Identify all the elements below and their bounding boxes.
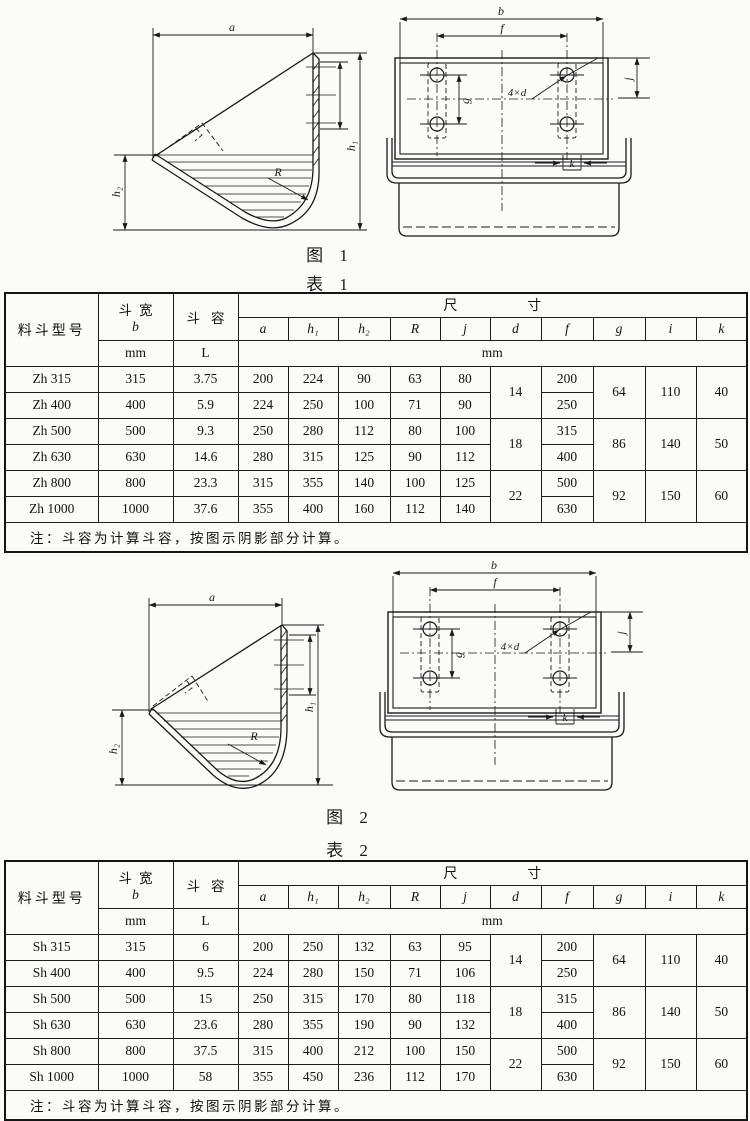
table-cell: 64 xyxy=(593,366,645,418)
header-dimensions: 尺寸 xyxy=(238,861,747,885)
table-cell: 250 xyxy=(541,960,593,986)
table-cell: 5.9 xyxy=(173,392,238,418)
table-cell: 224 xyxy=(238,960,288,986)
dim-label-h2: h₂ xyxy=(108,744,120,754)
table-cell: 500 xyxy=(98,986,173,1012)
dim-label-b: b xyxy=(498,6,504,18)
table-cell: 60 xyxy=(696,1038,747,1090)
dim-label-R: R xyxy=(249,729,258,743)
table-row: Zh 800 800 23.3 315 355 140 100 125 22 5… xyxy=(5,470,747,496)
model-cell: Zh 800 xyxy=(5,470,98,496)
dim-label-a: a xyxy=(229,20,235,34)
table-cell: 132 xyxy=(440,1012,490,1038)
dim-col-header: j xyxy=(440,885,490,908)
table-cell: 86 xyxy=(593,986,645,1038)
dimension-lines xyxy=(113,28,367,230)
dimension-lines xyxy=(112,598,333,785)
header-width-symbol: b xyxy=(99,887,173,903)
dim-col-header: k xyxy=(696,885,747,908)
table-cell: 90 xyxy=(390,1012,440,1038)
dim-label-h1: h₁ xyxy=(302,702,316,712)
table-cell: 80 xyxy=(440,366,490,392)
table-cell: 50 xyxy=(696,418,747,470)
table-cell: 112 xyxy=(440,444,490,470)
table-cell: 280 xyxy=(238,444,288,470)
table-cell: 112 xyxy=(390,496,440,522)
table-cell: 355 xyxy=(288,470,338,496)
table-cell: 100 xyxy=(440,418,490,444)
table-cell: 64 xyxy=(593,934,645,986)
table-cell: 630 xyxy=(541,496,593,522)
shading-lines xyxy=(156,713,281,776)
table-cell: 140 xyxy=(645,418,696,470)
table-cell: 80 xyxy=(390,986,440,1012)
table-cell: 170 xyxy=(440,1064,490,1090)
dim-col-header: f xyxy=(541,317,593,340)
table-cell: 22 xyxy=(490,470,541,522)
header-width: 斗宽 b xyxy=(98,293,173,340)
table-cell: 14.6 xyxy=(173,444,238,470)
table-cell: 200 xyxy=(238,366,288,392)
figure1-caption: 图 1 xyxy=(0,241,660,266)
table-cell: 800 xyxy=(98,1038,173,1064)
dim-col-header: i xyxy=(645,885,696,908)
document-page: { "figure1": { "caption_fig": "图 1", "ca… xyxy=(0,0,750,1121)
table-cell: 37.5 xyxy=(173,1038,238,1064)
figure2-rear-view-drawing: b f g j k 4×d xyxy=(378,560,726,800)
table-cell: 500 xyxy=(541,470,593,496)
table-cell: 280 xyxy=(288,960,338,986)
table-cell: 9.3 xyxy=(173,418,238,444)
table-cell: 280 xyxy=(238,1012,288,1038)
dim-label-R: R xyxy=(273,165,282,179)
shading-lines xyxy=(156,155,313,217)
table-cell: 90 xyxy=(390,444,440,470)
table-cell: 200 xyxy=(541,366,593,392)
table-cell: 110 xyxy=(645,934,696,986)
table-cell: 95 xyxy=(440,934,490,960)
header-width-symbol: b xyxy=(99,319,173,335)
holes-count-label: 4×d xyxy=(508,87,527,99)
dim-col-header: d xyxy=(490,317,541,340)
table-cell: 100 xyxy=(390,1038,440,1064)
table-cell: 9.5 xyxy=(173,960,238,986)
table-cell: 132 xyxy=(338,934,390,960)
table-row: Zh 500 500 9.3 250 280 112 80 100 18 315… xyxy=(5,418,747,444)
dim-col-header: j xyxy=(440,317,490,340)
table-cell: 160 xyxy=(338,496,390,522)
table-cell: 224 xyxy=(288,366,338,392)
table-cell: 18 xyxy=(490,418,541,470)
table-row: Sh 500 500 15 250 315 170 80 118 18 315 … xyxy=(5,986,747,1012)
model-cell: Sh 800 xyxy=(5,1038,98,1064)
table-cell: 58 xyxy=(173,1064,238,1090)
table-cell: 224 xyxy=(238,392,288,418)
table-cell: 200 xyxy=(238,934,288,960)
table-cell: 450 xyxy=(288,1064,338,1090)
dim-col-header: h₁ xyxy=(288,885,338,908)
wall-hatching xyxy=(274,630,304,722)
table-cell: 14 xyxy=(490,366,541,418)
dim-col-header: g xyxy=(593,317,645,340)
model-cell: Sh 315 xyxy=(5,934,98,960)
table-cell: 315 xyxy=(98,366,173,392)
table-cell: 150 xyxy=(338,960,390,986)
model-cell: Zh 1000 xyxy=(5,496,98,522)
table-cell: 280 xyxy=(288,418,338,444)
model-cell: Zh 500 xyxy=(5,418,98,444)
dim-label-a: a xyxy=(209,590,215,604)
table-cell: 40 xyxy=(696,934,747,986)
table-cell: 500 xyxy=(541,1038,593,1064)
table-cell: 250 xyxy=(541,392,593,418)
table-cell: 100 xyxy=(390,470,440,496)
table-cell: 71 xyxy=(390,392,440,418)
table-cell: 236 xyxy=(338,1064,390,1090)
table1: 料斗型号 斗宽 b 斗容 尺寸 a h₁ h₂ R j d f g i k mm… xyxy=(4,292,748,553)
dim-col-header: k xyxy=(696,317,747,340)
model-cell: Sh 630 xyxy=(5,1012,98,1038)
table-cell: 315 xyxy=(98,934,173,960)
bucket-outline xyxy=(149,625,287,788)
unit-cell: mm xyxy=(98,908,173,934)
table-cell: 400 xyxy=(98,960,173,986)
table-cell: 23.6 xyxy=(173,1012,238,1038)
table-cell: 6 xyxy=(173,934,238,960)
dim-label-b: b xyxy=(491,560,497,572)
table-cell: 90 xyxy=(440,392,490,418)
table-cell: 90 xyxy=(338,366,390,392)
unit-cell: L xyxy=(173,908,238,934)
holes-count-label: 4×d xyxy=(501,641,520,653)
table-cell: 140 xyxy=(440,496,490,522)
dim-col-header: f xyxy=(541,885,593,908)
table-cell: 92 xyxy=(593,470,645,522)
table-cell: 150 xyxy=(645,1038,696,1090)
dim-label-h1: h₁ xyxy=(344,141,358,151)
table-cell: 1000 xyxy=(98,1064,173,1090)
model-cell: Sh 400 xyxy=(5,960,98,986)
model-cell: Sh 1000 xyxy=(5,1064,98,1090)
table-cell: 71 xyxy=(390,960,440,986)
table-cell: 112 xyxy=(338,418,390,444)
dim-label-g: g xyxy=(458,98,472,104)
table-cell: 14 xyxy=(490,934,541,986)
table-cell: 190 xyxy=(338,1012,390,1038)
dashed-construction xyxy=(156,123,223,156)
table-cell: 630 xyxy=(98,1012,173,1038)
table-cell: 800 xyxy=(98,470,173,496)
dim-col-header: h₁ xyxy=(288,317,338,340)
table-cell: 100 xyxy=(338,392,390,418)
table-cell: 150 xyxy=(440,1038,490,1064)
header-capacity: 斗容 xyxy=(173,861,238,908)
table-cell: 106 xyxy=(440,960,490,986)
table-cell: 140 xyxy=(645,986,696,1038)
model-cell: Sh 500 xyxy=(5,986,98,1012)
table-cell: 355 xyxy=(288,1012,338,1038)
dim-label-k: k xyxy=(570,158,576,170)
wall-hatching xyxy=(306,62,336,166)
figure2: a h₁ h₂ R xyxy=(0,560,750,802)
figure2-side-view-drawing: a h₁ h₂ R xyxy=(108,572,378,796)
dim-label-g: g xyxy=(451,652,465,658)
table-cell: 80 xyxy=(390,418,440,444)
table-cell: 250 xyxy=(238,986,288,1012)
dim-col-header: h₂ xyxy=(338,317,390,340)
table-cell: 112 xyxy=(390,1064,440,1090)
table-row: Sh 800 800 37.5 315 400 212 100 150 22 5… xyxy=(5,1038,747,1064)
dim-label-h2: h₂ xyxy=(110,187,123,197)
unit-cell: L xyxy=(173,340,238,366)
table-cell: 37.6 xyxy=(173,496,238,522)
table-cell: 212 xyxy=(338,1038,390,1064)
table-cell: 23.3 xyxy=(173,470,238,496)
table-cell: 500 xyxy=(98,418,173,444)
table-cell: 250 xyxy=(238,418,288,444)
table-cell: 200 xyxy=(541,934,593,960)
dim-col-header: d xyxy=(490,885,541,908)
table-cell: 63 xyxy=(390,934,440,960)
table-row: Zh 315 315 3.75 200 224 90 63 80 14 200 … xyxy=(5,366,747,392)
header-width: 斗宽 b xyxy=(98,861,173,908)
table-cell: 1000 xyxy=(98,496,173,522)
table-cell: 630 xyxy=(98,444,173,470)
dim-label-k: k xyxy=(563,712,569,724)
table-cell: 15 xyxy=(173,986,238,1012)
figure1-rear-view-drawing: b f g j k 4×d xyxy=(385,6,733,246)
table-cell: 18 xyxy=(490,986,541,1038)
table-cell: 50 xyxy=(696,986,747,1038)
table-cell: 92 xyxy=(593,1038,645,1090)
table-cell: 315 xyxy=(238,1038,288,1064)
table-cell: 118 xyxy=(440,986,490,1012)
table-cell: 400 xyxy=(541,1012,593,1038)
model-cell: Zh 315 xyxy=(5,366,98,392)
figure1: a h₁ h₂ R xyxy=(0,6,750,246)
table-cell: 125 xyxy=(338,444,390,470)
header-model: 料斗型号 xyxy=(5,861,98,934)
table-cell: 315 xyxy=(238,470,288,496)
table-row: Sh 315 315 6 200 250 132 63 95 14 200 64… xyxy=(5,934,747,960)
table-cell: 125 xyxy=(440,470,490,496)
table-note: 注：斗容为计算斗容，按图示阴影部分计算。 xyxy=(5,1090,747,1120)
table-cell: 22 xyxy=(490,1038,541,1090)
unit-cell: mm xyxy=(238,340,747,366)
figure1-side-view-drawing: a h₁ h₂ R xyxy=(110,18,375,240)
dashed-construction xyxy=(153,676,209,706)
table-cell: 63 xyxy=(390,366,440,392)
table-cell: 355 xyxy=(238,496,288,522)
model-cell: Zh 400 xyxy=(5,392,98,418)
table-cell: 3.75 xyxy=(173,366,238,392)
table-cell: 400 xyxy=(98,392,173,418)
table-cell: 315 xyxy=(541,418,593,444)
dim-col-header: h₂ xyxy=(338,885,390,908)
dim-label-f: f xyxy=(493,575,498,589)
table-cell: 630 xyxy=(541,1064,593,1090)
figure2-caption: 图 2 xyxy=(0,803,700,828)
header-capacity: 斗容 xyxy=(173,293,238,340)
dim-col-header: a xyxy=(238,885,288,908)
dim-col-header: R xyxy=(390,885,440,908)
table-cell: 40 xyxy=(696,366,747,418)
dim-label-f: f xyxy=(500,21,505,35)
table-cell: 86 xyxy=(593,418,645,470)
table-cell: 400 xyxy=(288,496,338,522)
dim-col-header: R xyxy=(390,317,440,340)
header-dimensions: 尺寸 xyxy=(238,293,747,317)
dim-col-header: i xyxy=(645,317,696,340)
table-cell: 140 xyxy=(338,470,390,496)
table-cell: 170 xyxy=(338,986,390,1012)
table-cell: 150 xyxy=(645,470,696,522)
table-cell: 250 xyxy=(288,934,338,960)
table2: 料斗型号 斗宽 b 斗容 尺寸 a h₁ h₂ R j d f g i k mm… xyxy=(4,860,748,1121)
table-cell: 60 xyxy=(696,470,747,522)
table2-caption: 表 2 xyxy=(0,836,700,861)
table-cell: 315 xyxy=(541,986,593,1012)
table-cell: 250 xyxy=(288,392,338,418)
table-cell: 315 xyxy=(288,444,338,470)
dim-col-header: a xyxy=(238,317,288,340)
table-cell: 400 xyxy=(541,444,593,470)
unit-cell: mm xyxy=(238,908,747,934)
table-cell: 400 xyxy=(288,1038,338,1064)
header-model: 料斗型号 xyxy=(5,293,98,366)
dim-label-j: j xyxy=(614,631,628,637)
table-note: 注：斗容为计算斗容，按图示阴影部分计算。 xyxy=(5,522,747,552)
table-cell: 110 xyxy=(645,366,696,418)
dim-label-j: j xyxy=(621,77,635,83)
model-cell: Zh 630 xyxy=(5,444,98,470)
header-width-label: 斗宽 xyxy=(99,867,173,887)
header-width-label: 斗宽 xyxy=(99,299,173,319)
unit-cell: mm xyxy=(98,340,173,366)
table-cell: 355 xyxy=(238,1064,288,1090)
table-cell: 315 xyxy=(288,986,338,1012)
dim-col-header: g xyxy=(593,885,645,908)
